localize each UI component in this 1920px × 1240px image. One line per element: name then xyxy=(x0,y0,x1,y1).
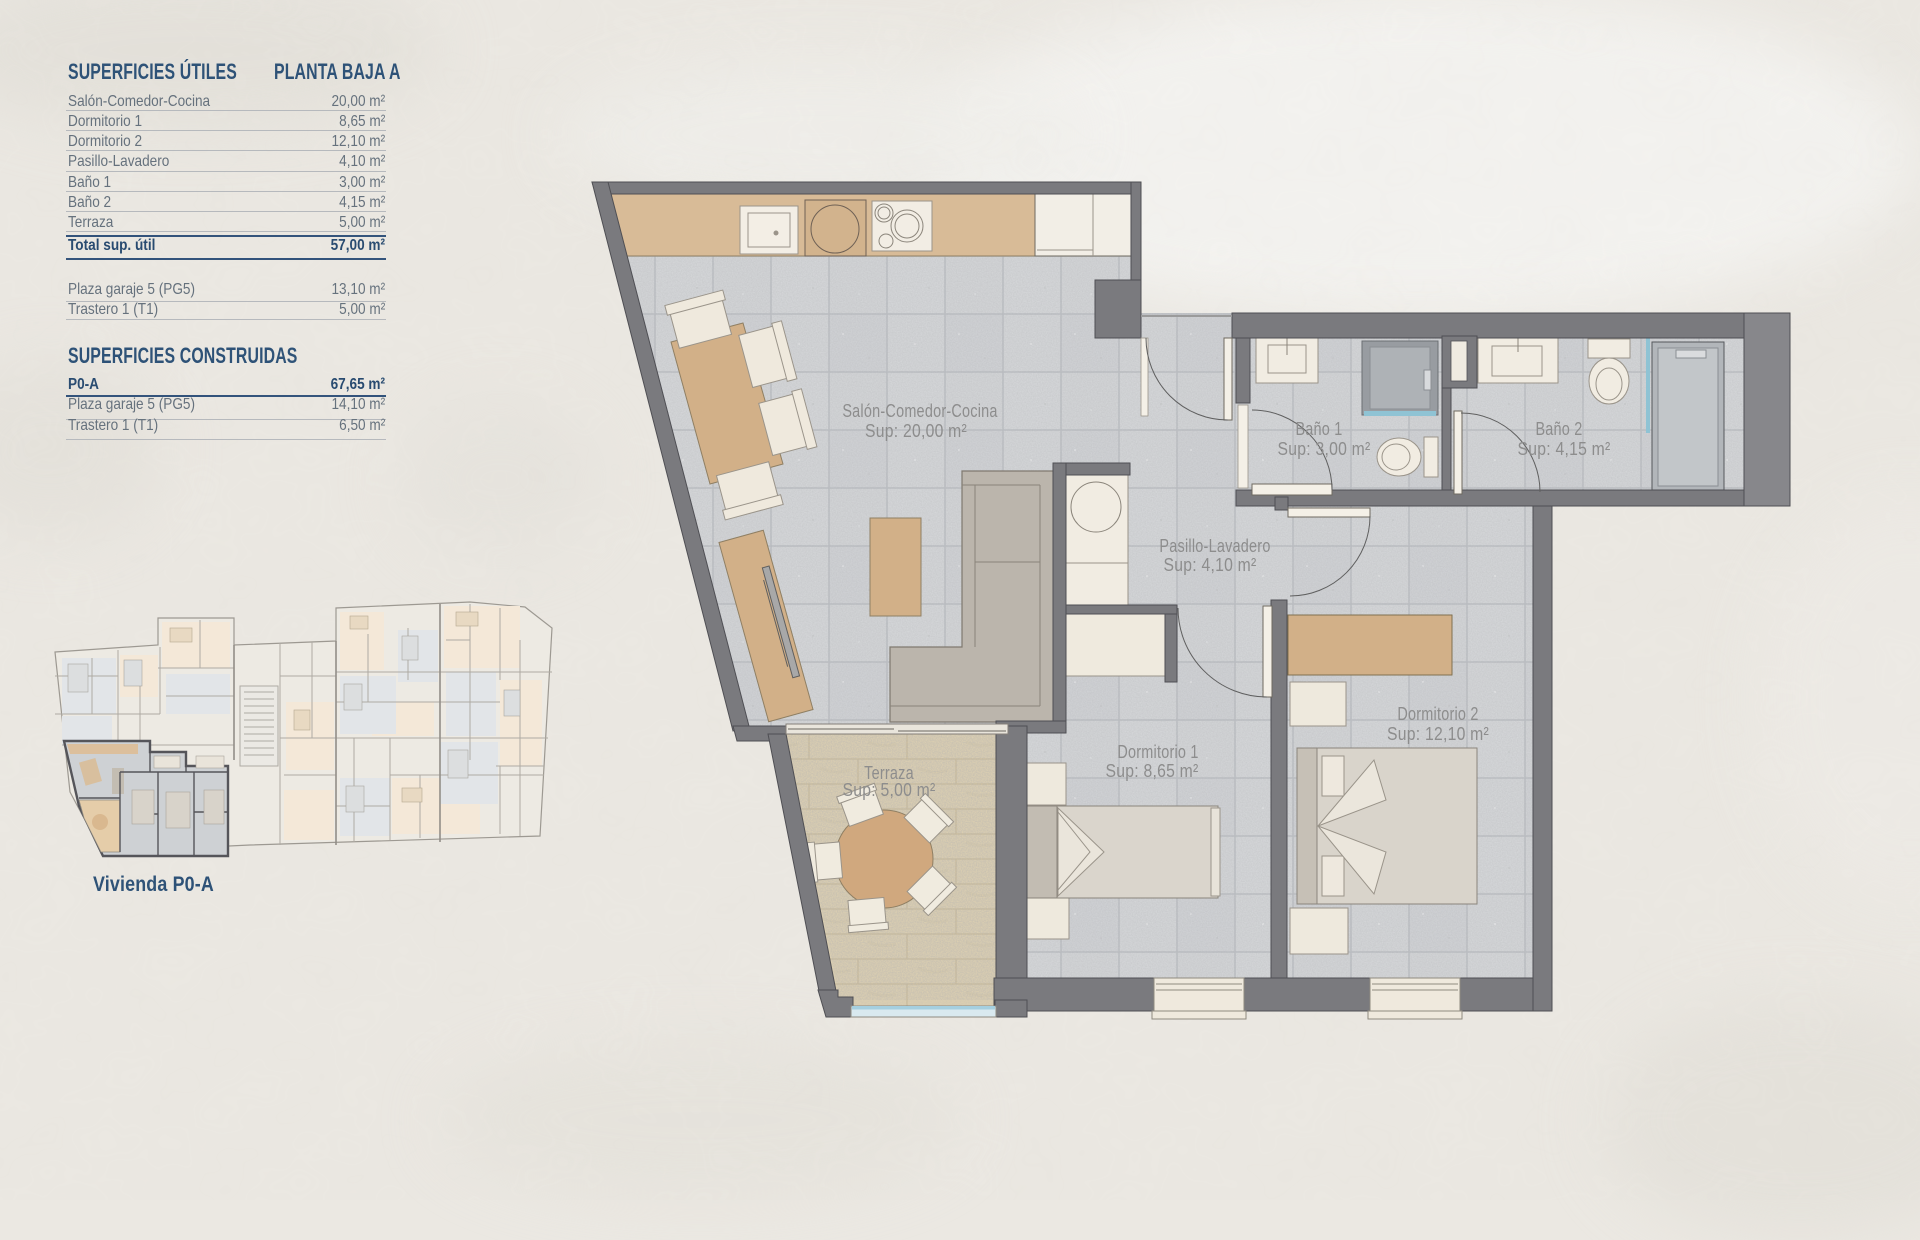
svg-text:Baño 1: Baño 1 xyxy=(1295,418,1342,439)
svg-text:Salón-Comedor-Cocina: Salón-Comedor-Cocina xyxy=(842,400,998,421)
svg-text:Dormitorio 2: Dormitorio 2 xyxy=(1397,703,1478,724)
svg-text:Sup: 5,00 m²: Sup: 5,00 m² xyxy=(842,779,935,801)
svg-text:Sup: 3,00 m²: Sup: 3,00 m² xyxy=(1277,438,1370,460)
svg-text:Baño 2: Baño 2 xyxy=(1535,418,1582,439)
svg-text:Sup: 20,00 m²: Sup: 20,00 m² xyxy=(865,420,967,442)
svg-text:Sup: 8,65 m²: Sup: 8,65 m² xyxy=(1105,760,1198,782)
svg-text:Sup: 12,10 m²: Sup: 12,10 m² xyxy=(1387,723,1489,745)
svg-text:Sup: 4,10 m²: Sup: 4,10 m² xyxy=(1163,554,1256,576)
svg-text:Sup: 4,15 m²: Sup: 4,15 m² xyxy=(1517,438,1610,460)
